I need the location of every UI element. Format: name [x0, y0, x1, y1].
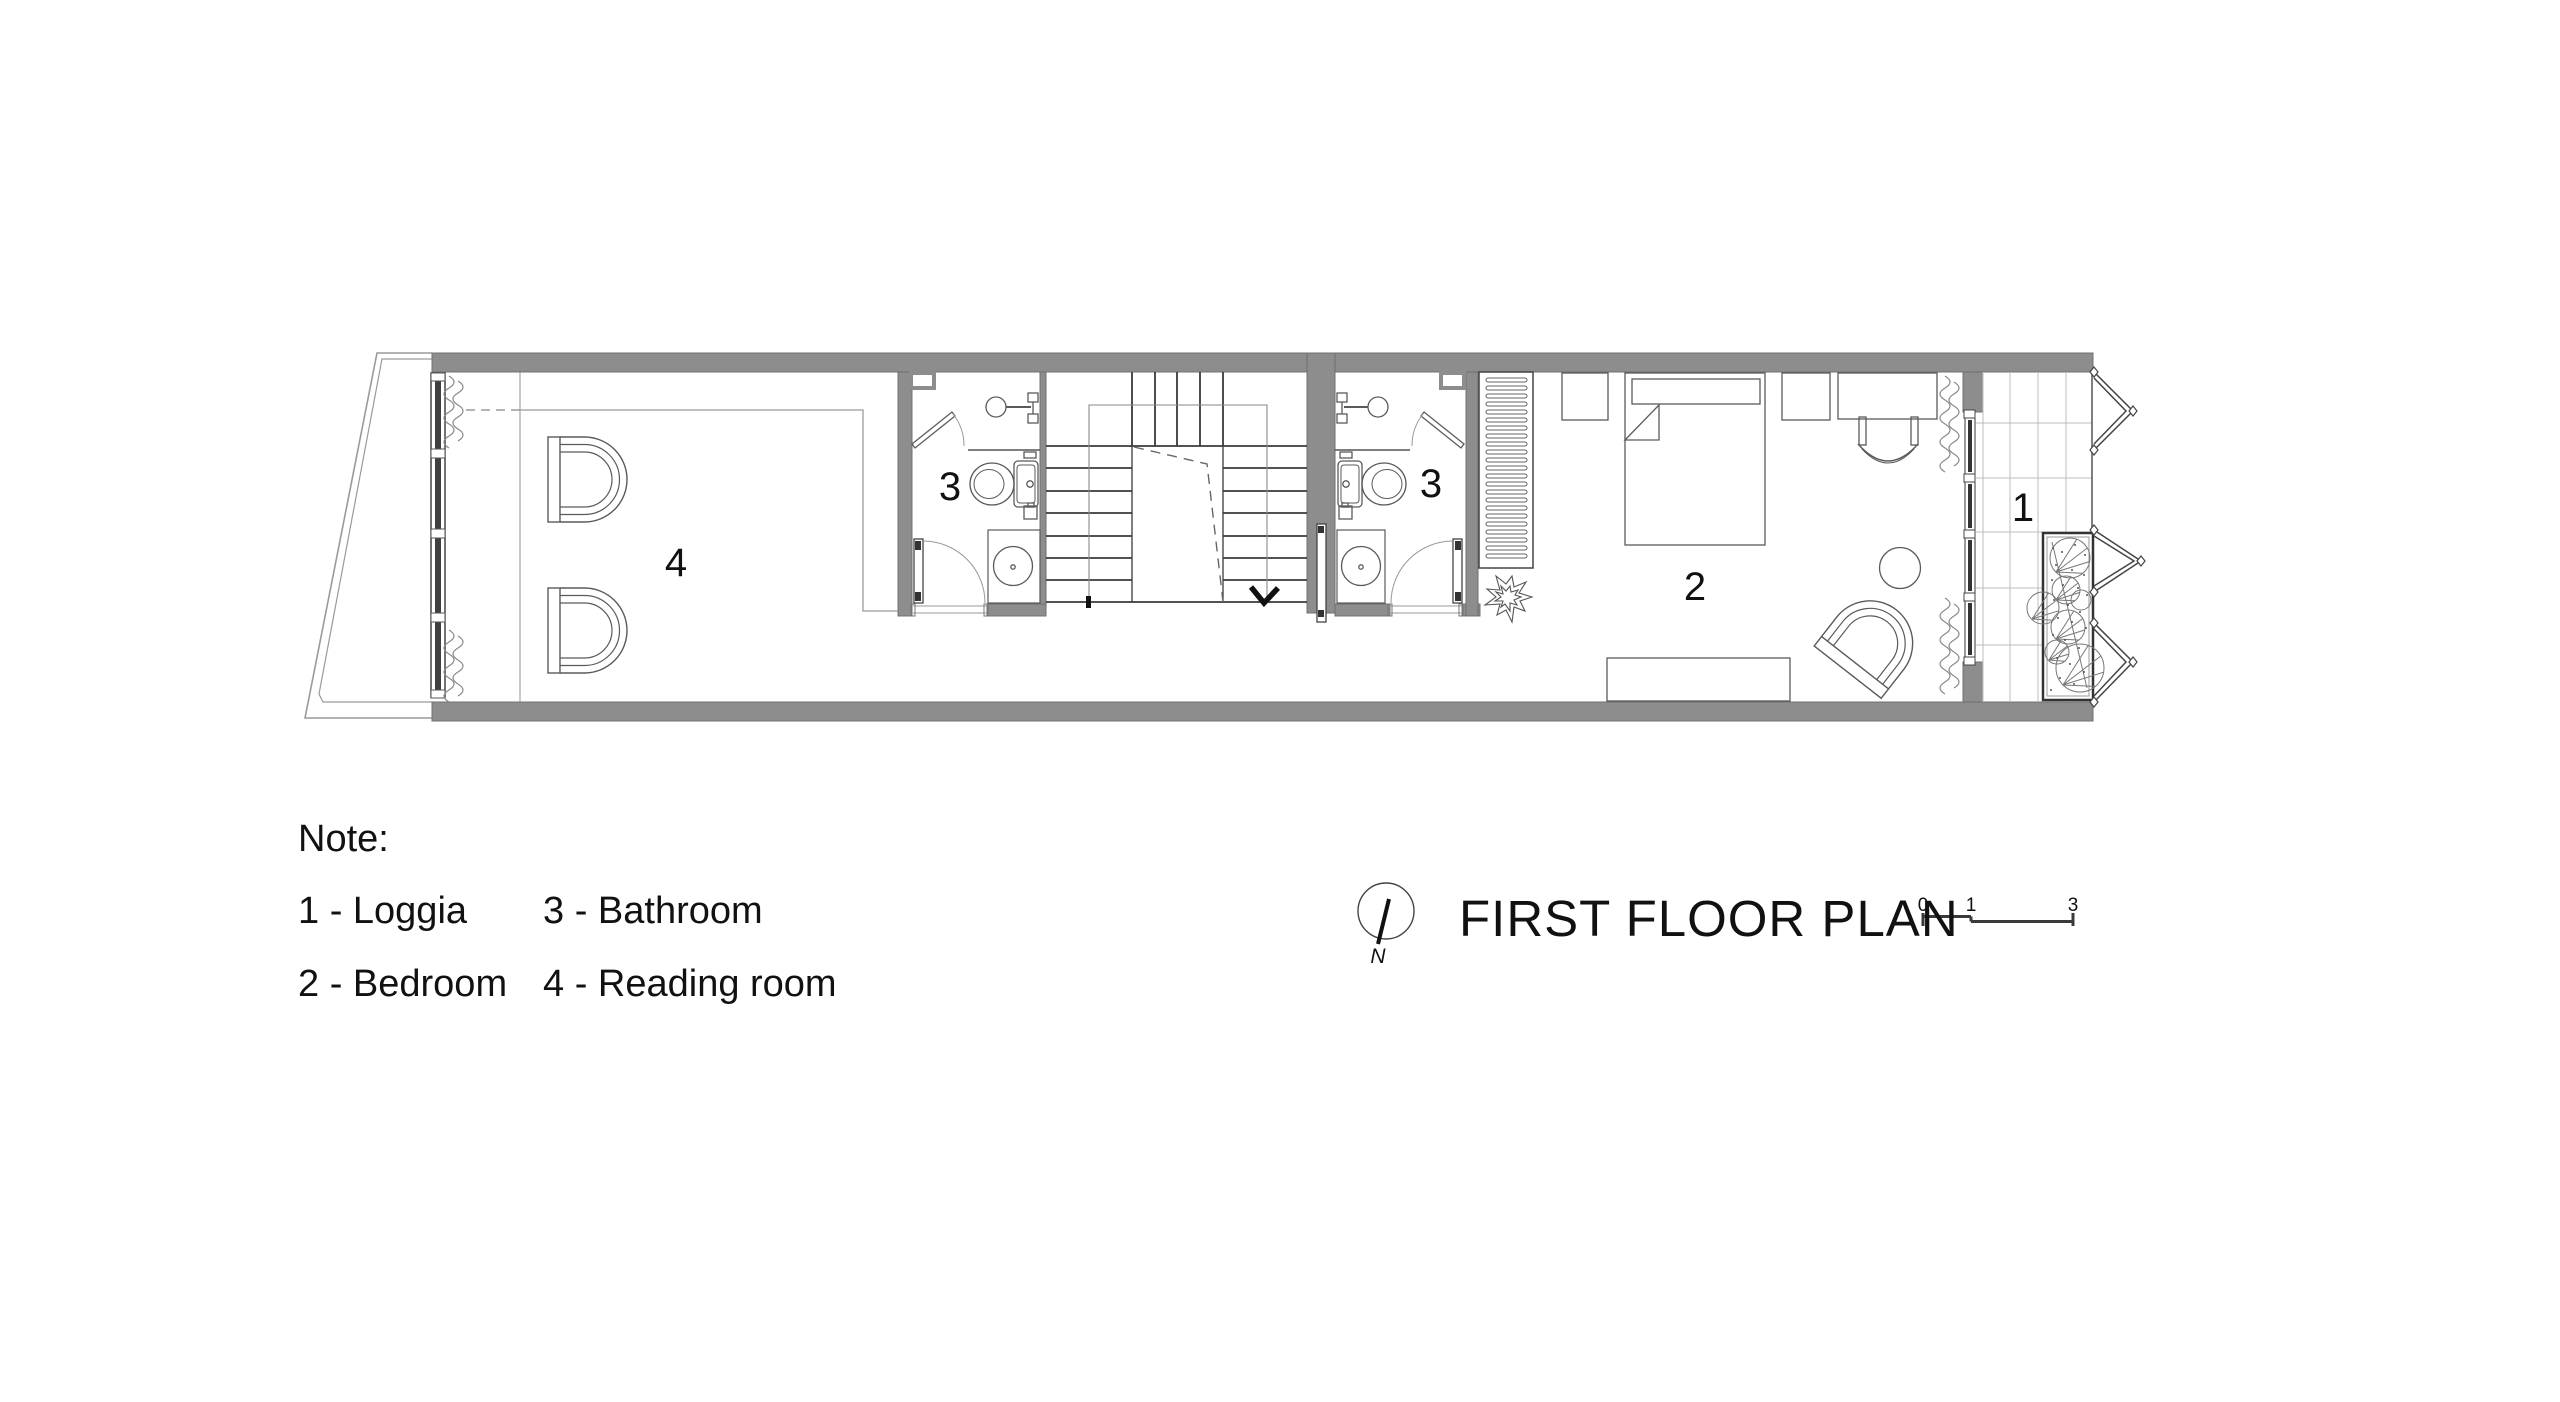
toilet-icon: [1338, 452, 1406, 519]
wall-top: [432, 353, 2093, 372]
room-label-loggia: 1: [2012, 486, 2034, 530]
bedroom: 2: [1562, 373, 1975, 701]
wall-bathR-bedroom: [1466, 372, 1478, 616]
door-shower: [912, 412, 964, 448]
floor-plan-sheet: 4: [0, 0, 2560, 1402]
lounge-armchair-icon: [1814, 584, 1930, 699]
reading-room: 4: [431, 372, 898, 702]
door-corridor: [1317, 524, 1326, 622]
north-arrow-icon: N: [1358, 883, 1414, 968]
note-heading: Note:: [298, 818, 389, 861]
room-label-bedroom: 2: [1684, 565, 1706, 609]
planter: [2027, 533, 2104, 700]
armchair-icon: [548, 588, 627, 673]
legend-item-loggia: 1 - Loggia: [298, 890, 467, 933]
site-boundary-lines: [305, 353, 432, 718]
bathroom-left: 3: [911, 393, 1040, 616]
nightstand: [1782, 373, 1830, 420]
door-bathroom-right: [1388, 539, 1463, 616]
wall-bathL-stair: [1040, 372, 1046, 604]
curtain-icon: [1940, 376, 1959, 694]
legend-item-reading-room: 4 - Reading room: [543, 963, 837, 1006]
bench: [1607, 658, 1790, 701]
door-shower: [1412, 412, 1464, 448]
wall-reading-bath: [898, 372, 912, 616]
room-label-bathroom-right: 3: [1420, 462, 1442, 506]
wall-loggia-stub-top: [1963, 372, 1983, 412]
floor-plan-drawing: 4: [0, 0, 2560, 1402]
wall-loggia-stub-bottom: [1963, 662, 1983, 702]
toilet-icon: [970, 452, 1038, 519]
plant-icon: [1485, 576, 1532, 622]
wall-bottom: [432, 702, 2093, 721]
bathroom-right: 3: [1335, 393, 1464, 616]
page-title: FIRST FLOOR PLAN: [1459, 889, 1959, 948]
wall-bathL-bottom: [987, 604, 1046, 616]
stair-cut-line: [1134, 447, 1223, 602]
stair-railing: [1089, 405, 1267, 602]
stair-start-tick: [1086, 596, 1091, 608]
louver-screen: [1479, 372, 1533, 568]
desk-chair: [1858, 417, 1918, 463]
sink-icon: [1337, 530, 1385, 603]
void-edge-line: [520, 410, 898, 611]
desk: [1838, 373, 1937, 419]
curtain-icon: [444, 376, 463, 702]
duct-shaft-right: [1441, 373, 1464, 388]
armchair-icon: [548, 437, 627, 522]
wall-bathR-bottom: [1335, 604, 1390, 616]
scale-tick-1: 1: [1966, 895, 1977, 916]
shower-icon: [986, 393, 1038, 423]
shower-icon: [1337, 393, 1388, 423]
scale-tick-3: 3: [2068, 895, 2079, 916]
bed: [1625, 373, 1765, 545]
window-west: [431, 373, 445, 698]
legend-item-bedroom: 2 - Bedroom: [298, 963, 507, 1006]
sliding-glass-door: [1964, 410, 1975, 665]
nightstand: [1562, 373, 1608, 420]
room-label-bathroom-left: 3: [939, 465, 961, 509]
north-label: N: [1370, 945, 1386, 968]
door-bathroom-left: [911, 539, 988, 616]
room-label-reading-room: 4: [665, 541, 687, 585]
staircase: [1046, 372, 1326, 622]
legend-item-bathroom: 3 - Bathroom: [543, 890, 763, 933]
stair-direction-arrow-icon: [1251, 587, 1278, 603]
loggia: 1: [1976, 367, 2145, 707]
duct-shaft-left: [911, 373, 934, 388]
sink-icon: [988, 530, 1040, 603]
folding-shutters-icon: [2090, 367, 2145, 707]
round-table: [1880, 548, 1921, 589]
